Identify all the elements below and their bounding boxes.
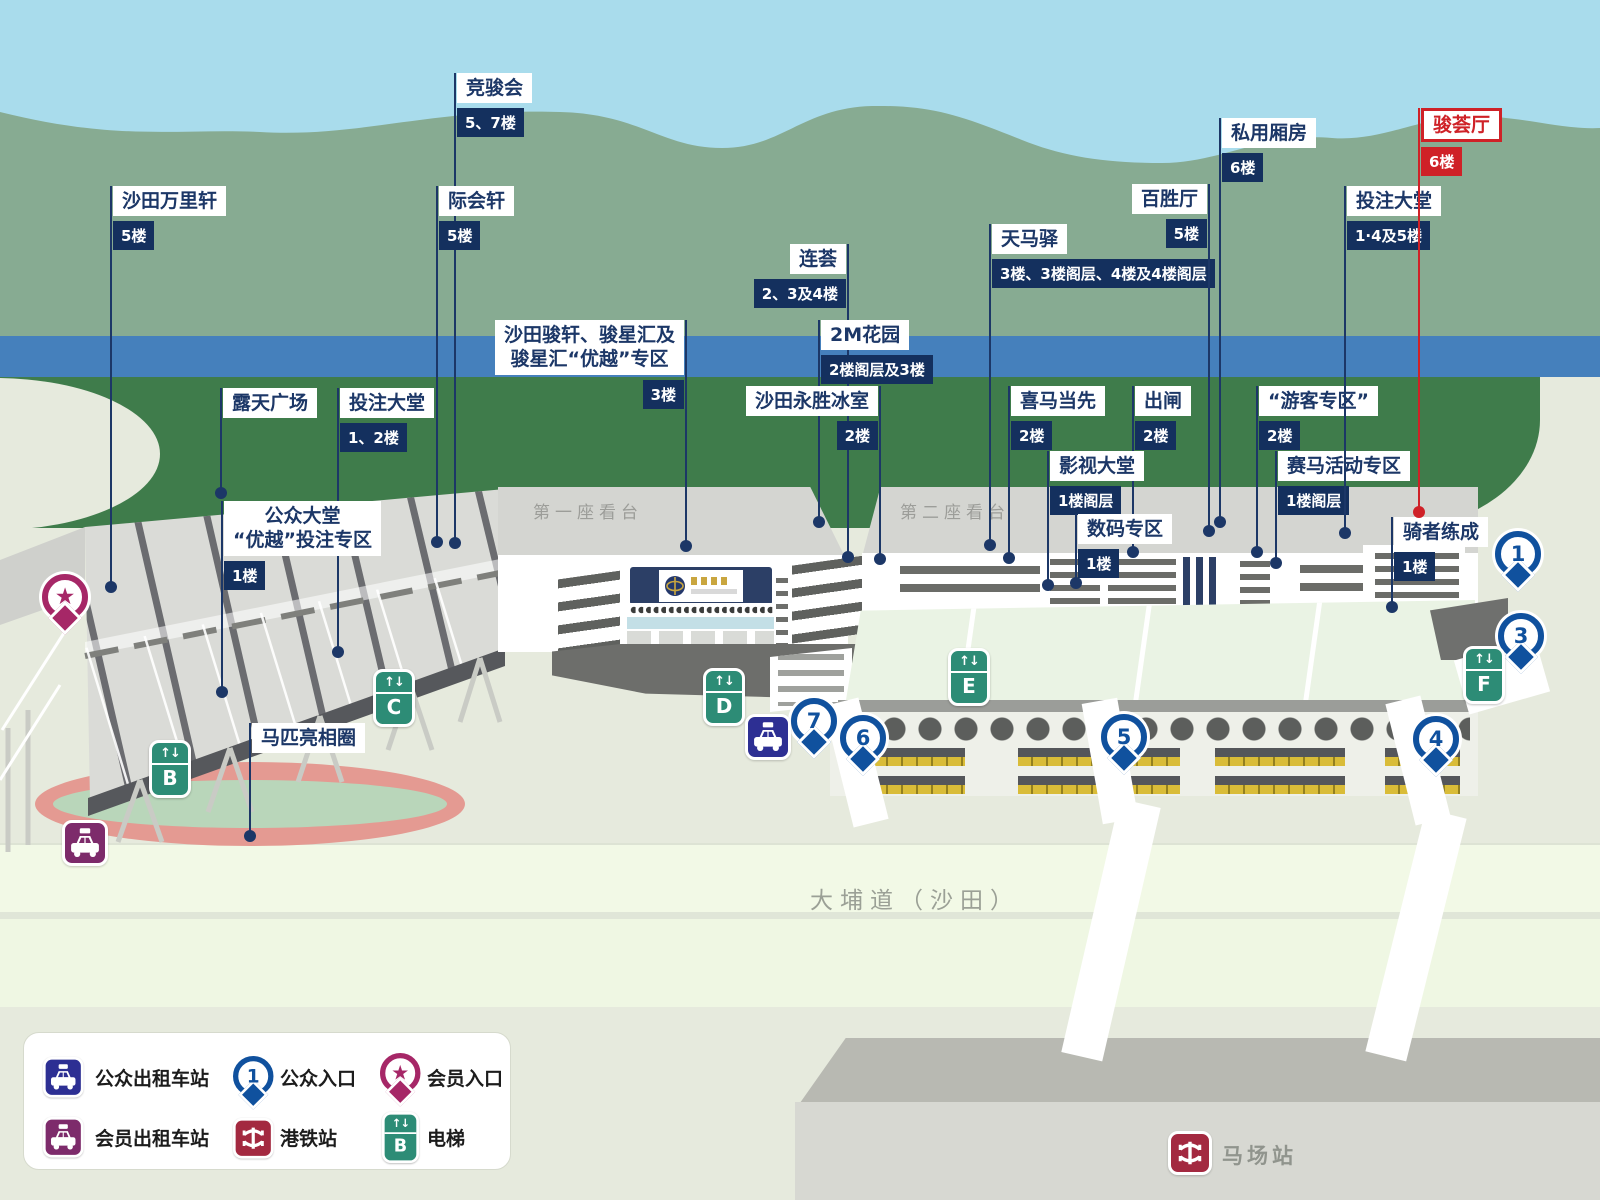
hkjc-logo-icon xyxy=(664,575,686,597)
updown-arrows-icon: ↑↓ xyxy=(1466,649,1502,671)
leader-line xyxy=(110,186,112,587)
facility-name: 投注大堂 xyxy=(1347,186,1441,216)
bushes-row xyxy=(842,716,1470,744)
leader-dot xyxy=(216,686,228,698)
leader-line xyxy=(1047,451,1049,585)
grandstand-two-canopy xyxy=(845,600,1475,706)
leader-dot xyxy=(813,516,825,528)
grandstand-two-label: 第二座看台 xyxy=(900,498,1010,523)
leader-dot xyxy=(1270,557,1282,569)
leader-line xyxy=(1219,118,1221,522)
sign-text-bar xyxy=(691,589,737,594)
leader-line xyxy=(685,320,687,546)
leader-line xyxy=(1275,451,1277,563)
lift-B: ↑↓ B xyxy=(149,740,191,798)
leader-line xyxy=(436,186,438,542)
leader-line xyxy=(1008,386,1010,558)
lift-letter: D xyxy=(716,693,733,719)
leader-line xyxy=(221,501,223,692)
entrance-number: 3 xyxy=(1514,624,1529,648)
entrance-number: 1 xyxy=(1511,542,1526,566)
updown-arrows-icon: ↑↓ xyxy=(152,743,188,765)
facility-name: 骑者练成 xyxy=(1394,517,1488,547)
louver-band xyxy=(900,566,1040,602)
louver-band xyxy=(1300,565,1370,601)
entrance-pin-4: 4 xyxy=(1413,716,1459,762)
facility-floor: 2楼 xyxy=(837,421,878,450)
facility-name: 沙田万里轩 xyxy=(113,186,226,216)
leader-dot xyxy=(449,537,461,549)
legend-icon-lift: ↑↓ B xyxy=(382,1112,426,1165)
river xyxy=(0,336,1600,377)
mtr-icon xyxy=(233,1118,273,1158)
legend-label: 电梯 xyxy=(427,1124,465,1151)
lift-letter: F xyxy=(1477,671,1491,697)
facility-name: 露天广场 xyxy=(223,388,317,418)
facility-floor: 6楼 xyxy=(1421,147,1462,176)
leader-dot xyxy=(1339,527,1351,539)
facility-name: 公众大堂“优越”投注专区 xyxy=(224,501,381,556)
facility-name: 影视大堂 xyxy=(1050,451,1144,481)
facility-floor: 2楼 xyxy=(1011,421,1052,450)
queue-barrier xyxy=(1215,776,1345,794)
leader-dot xyxy=(680,540,692,552)
taxi-icon xyxy=(748,717,788,757)
lift-F: ↑↓ F xyxy=(1463,646,1505,704)
lift-letter: B xyxy=(394,1134,407,1157)
leader-dot xyxy=(1070,577,1082,589)
shatin-racecourse-map: 第一座看台 第二座看台 xyxy=(0,0,1600,1200)
facade-vent-strip xyxy=(776,578,788,644)
facility-floor: 5楼 xyxy=(113,221,154,250)
lift-letter: B xyxy=(162,765,177,791)
leader-dot xyxy=(1042,579,1054,591)
taxi-stand-member xyxy=(43,1117,83,1157)
legend-icon-taxi-member xyxy=(43,1117,87,1170)
grandstand-one-label: 第一座看台 xyxy=(533,498,643,523)
updown-arrows-icon: ↑↓ xyxy=(385,1115,417,1134)
station-label: 马场站 xyxy=(1222,1140,1297,1170)
leader-line xyxy=(454,73,456,543)
entrance-pin-6: 6 xyxy=(840,715,886,761)
facility-name: 百胜厅 xyxy=(1132,184,1207,214)
facility-floor: 2楼阁层及3楼 xyxy=(821,355,933,384)
facility-floor: 2、3及4楼 xyxy=(754,279,846,308)
entrance-number: 4 xyxy=(1429,727,1444,751)
road-band xyxy=(0,919,1600,1007)
updown-arrows-icon: ↑↓ xyxy=(951,651,987,673)
leader-dot xyxy=(332,646,344,658)
facade-glass-strip xyxy=(627,617,774,629)
lift-letter: E xyxy=(962,673,976,699)
legend-label: 港铁站 xyxy=(280,1124,337,1151)
leader-line xyxy=(989,224,991,545)
facility-name: “游客专区” xyxy=(1259,386,1378,416)
entrance-pin-1: 1 xyxy=(233,1056,273,1096)
racecourse-station-roof xyxy=(795,1038,1600,1102)
entrance-pin-5: 5 xyxy=(1101,714,1147,760)
lift-letter: C xyxy=(387,694,402,720)
leader-dot xyxy=(431,536,443,548)
leader-dot xyxy=(1214,516,1226,528)
leader-line xyxy=(879,386,881,559)
leader-dot xyxy=(1003,552,1015,564)
leader-dot xyxy=(842,551,854,563)
leader-dot xyxy=(215,487,227,499)
leader-dot xyxy=(1251,546,1263,558)
facility-name: 天马驿 xyxy=(992,224,1067,254)
facility-name: 竞骏会 xyxy=(457,73,532,103)
taxi-icon xyxy=(65,823,105,863)
leader-line xyxy=(1344,186,1346,533)
facility-name: 马匹亮相圈 xyxy=(252,723,365,753)
facility-name: 私用厢房 xyxy=(1222,118,1316,148)
facility-floor: 1楼 xyxy=(1078,549,1119,578)
updown-arrows-icon: ↑↓ xyxy=(706,671,742,693)
updown-arrows-icon: ↑↓ xyxy=(376,672,412,694)
leader-line xyxy=(1418,108,1420,512)
leader-line xyxy=(1208,184,1210,531)
lift-E: ↑↓ E xyxy=(948,648,990,706)
taxi-stand-public xyxy=(43,1057,83,1097)
star-icon: ★ xyxy=(55,584,76,610)
entrance-number: 6 xyxy=(856,726,871,750)
legend-label: 会员入口 xyxy=(427,1064,503,1091)
facade-dots xyxy=(628,603,774,616)
legend-icon-taxi-public xyxy=(43,1057,87,1110)
leader-dot xyxy=(244,830,256,842)
facility-floor: 1、2楼 xyxy=(340,423,407,452)
road-divider xyxy=(0,912,1600,919)
leader-line xyxy=(249,723,251,836)
leader-dot xyxy=(874,553,886,565)
entrance-pin-7: 7 xyxy=(791,698,837,744)
member-entrance-pin: ★ xyxy=(42,574,88,620)
entrance-pin-1: 1 xyxy=(1495,531,1541,577)
entrance-number: 1 xyxy=(247,1066,260,1087)
leader-line xyxy=(1391,517,1393,607)
canopy-divider xyxy=(1302,596,1323,710)
entrance-number: 5 xyxy=(1117,725,1132,749)
hkjc-sign-panel xyxy=(659,570,743,602)
facility-floor: 6楼 xyxy=(1222,153,1263,182)
member-entrance-pin: ★ xyxy=(380,1053,420,1093)
digital-zone-grille xyxy=(1183,557,1219,611)
facility-floor: 1楼阁层 xyxy=(1050,486,1121,515)
facility-floor: 1楼阁层 xyxy=(1278,486,1349,515)
sign-text-blocks xyxy=(691,577,731,585)
star-icon: ★ xyxy=(391,1062,409,1085)
facility-name: 连荟 xyxy=(790,244,846,274)
leader-dot xyxy=(1413,506,1425,518)
taxi-stand-public xyxy=(745,714,791,760)
facility-name: 沙田骏轩、骏星汇及骏星汇“优越”专区 xyxy=(495,320,684,375)
facility-floor: 1楼 xyxy=(1394,552,1435,581)
lift-B: ↑↓ B xyxy=(382,1112,419,1163)
legend-icon-entrance-pin: 1 xyxy=(233,1056,277,1109)
taxi-stand-member xyxy=(62,820,108,866)
legend-label: 会员出租车站 xyxy=(95,1124,209,1151)
lift-D: ↑↓ D xyxy=(703,668,745,726)
road-label: 大埔道（沙田） xyxy=(810,881,1020,915)
leader-dot xyxy=(1203,525,1215,537)
facility-floor: 5楼 xyxy=(439,221,480,250)
facility-name: 骏荟厅 xyxy=(1421,108,1502,142)
leader-line xyxy=(1075,514,1077,583)
facility-name: 际会轩 xyxy=(439,186,514,216)
facility-name: 投注大堂 xyxy=(340,388,434,418)
facility-name: 出闸 xyxy=(1135,386,1191,416)
facility-name: 数码专区 xyxy=(1078,514,1172,544)
legend-icon-member-pin: ★ xyxy=(380,1053,424,1106)
leader-dot xyxy=(984,539,996,551)
facility-floor: 1楼 xyxy=(224,561,265,590)
mtr-icon xyxy=(1168,1131,1212,1175)
facility-floor: 3楼、3楼阁层、4楼及4楼阁层 xyxy=(992,259,1215,288)
queue-barrier xyxy=(1215,748,1345,766)
facility-floor: 2楼 xyxy=(1135,421,1176,450)
legend-label: 公众入口 xyxy=(280,1064,356,1091)
taxi-icon xyxy=(46,1060,81,1095)
facility-name: 沙田永胜冰室 xyxy=(746,386,878,416)
lift-C: ↑↓ C xyxy=(373,669,415,727)
facility-floor: 5、7楼 xyxy=(457,108,524,137)
louver-band xyxy=(1240,561,1270,607)
legend-icon-mtr xyxy=(233,1118,277,1171)
facility-floor: 5楼 xyxy=(1166,219,1207,248)
legend-label: 公众出租车站 xyxy=(95,1064,209,1091)
taxi-icon xyxy=(46,1120,81,1155)
hkjc-sign xyxy=(630,567,772,605)
facility-floor: 3楼 xyxy=(643,380,684,409)
leader-dot xyxy=(1386,601,1398,613)
leader-line xyxy=(220,388,222,493)
facility-name: 2M花园 xyxy=(821,320,909,350)
facility-floor: 2楼 xyxy=(1259,421,1300,450)
leader-line xyxy=(1256,386,1258,552)
entrance-pin-3: 3 xyxy=(1498,613,1544,659)
canopy-divider xyxy=(1132,596,1153,710)
facility-name: 喜马当先 xyxy=(1011,386,1105,416)
leader-dot xyxy=(105,581,117,593)
facade-windows xyxy=(627,631,774,646)
entrance-number: 7 xyxy=(807,709,822,733)
